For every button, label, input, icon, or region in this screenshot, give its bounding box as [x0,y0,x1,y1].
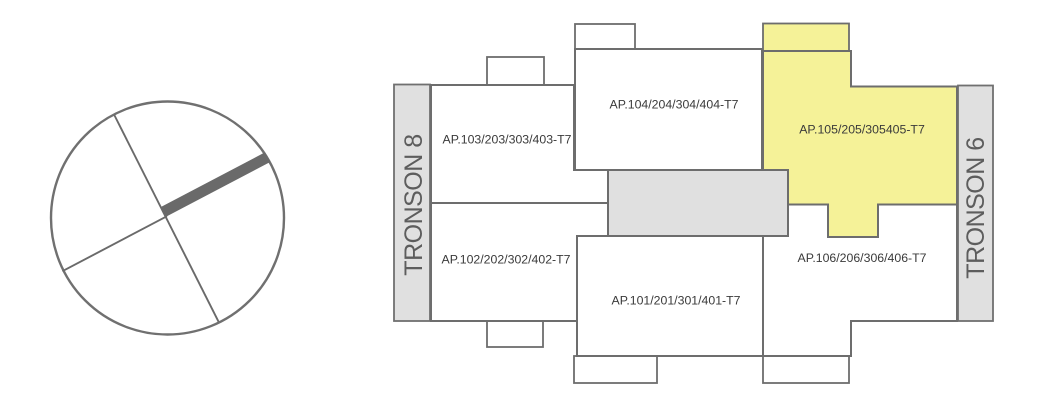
svg-text:AP.102/202/302/402-T7: AP.102/202/302/402-T7 [442,253,571,267]
svg-text:AP.106/206/306/406-T7: AP.106/206/306/406-T7 [798,251,927,265]
svg-text:TRONSON 8: TRONSON 8 [400,134,428,275]
svg-text:AP.105/205/305405-T7: AP.105/205/305405-T7 [799,123,925,137]
svg-text:TRONSON 6: TRONSON 6 [962,137,990,278]
svg-text:AP.104/204/304/404-T7: AP.104/204/304/404-T7 [610,98,739,112]
svg-text:AP.101/201/301/401-T7: AP.101/201/301/401-T7 [612,294,741,308]
svg-text:AP.103/203/303/403-T7: AP.103/203/303/403-T7 [443,133,572,147]
